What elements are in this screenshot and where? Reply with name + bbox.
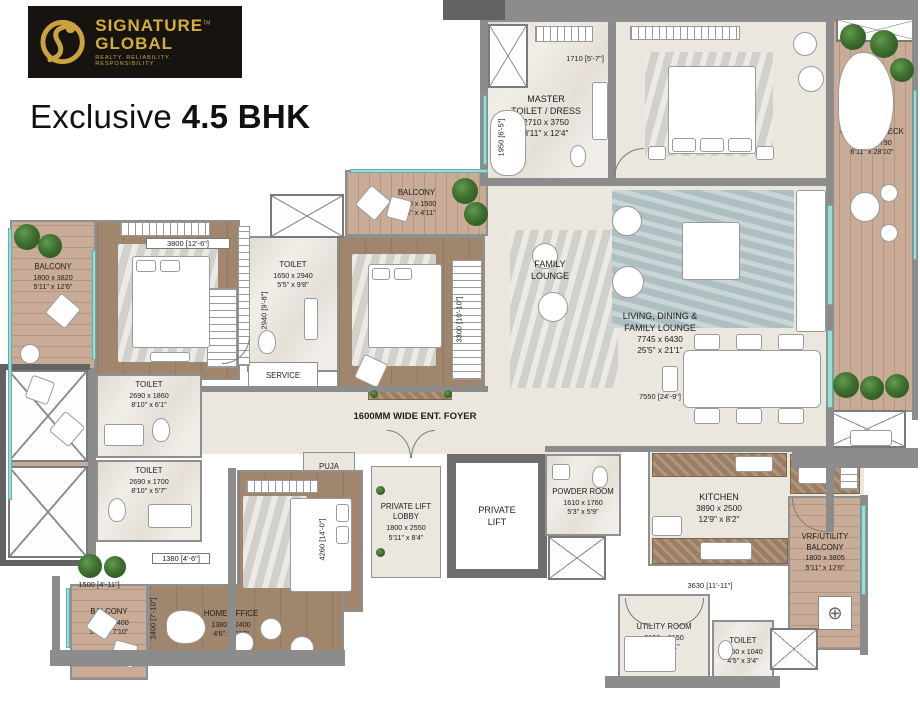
window (8, 228, 12, 500)
room-metric: 1800 x 3805 (805, 553, 845, 563)
room-metric: 2690 x 1700 (129, 477, 169, 487)
wall-kitchen-top (545, 446, 830, 452)
chair (880, 184, 898, 202)
wc (718, 640, 733, 660)
wardrobe (120, 222, 210, 236)
wc (108, 498, 126, 522)
side-table (20, 344, 40, 364)
dimension-label: 3300 [10'-10"] (455, 290, 464, 350)
brand-logo: SIGNATURETM GLOBAL REALTY. RELIABILITY. … (28, 6, 242, 78)
window (66, 588, 70, 648)
dimension-label: 1710 [5'-7"] (550, 54, 620, 63)
utility-counter (624, 636, 676, 672)
wall-bottom-right (605, 676, 780, 688)
sink (552, 464, 570, 480)
brand-tm: TM (203, 20, 210, 26)
dimension-label: 2940 [9'-8"] (260, 281, 269, 341)
brand-tagline: REALTY. RELIABILITY. RESPONSIBILITY. (95, 56, 232, 68)
dining-chair (778, 334, 804, 350)
room-label: SERVICE (266, 371, 300, 382)
room-label: BALCONY (398, 188, 435, 199)
lounge-sofa (838, 52, 894, 150)
wardrobe (630, 26, 740, 40)
pillow (394, 268, 412, 280)
plant (833, 372, 859, 398)
room-metric: 1610 x 1760 (563, 498, 603, 508)
room-label: MASTER TOILET / DRESS (511, 93, 581, 117)
room-metric: 7745 x 6430 (637, 334, 683, 345)
nightstand (756, 146, 774, 160)
room-private-lift: PRIVATE LIFT (447, 454, 547, 578)
room-label: BALCONY (34, 262, 71, 273)
pillow (728, 138, 752, 152)
nightstand (648, 146, 666, 160)
room-label: TOILET (135, 466, 162, 477)
room-label: FAMILY LOUNGE (531, 258, 569, 282)
chair (880, 224, 898, 242)
wall-shaft-top (0, 364, 90, 370)
dimension-label: 1380 [4'-6"] (152, 553, 210, 564)
foyer-label: 1600MM WIDE ENT. FOYER (340, 411, 490, 424)
dining-table (683, 350, 821, 408)
room-imperial: 5'5" x 9'8" (277, 280, 308, 290)
page-title: Exclusive 4.5 BHK (30, 98, 310, 136)
window (913, 90, 917, 260)
wall-bottom-left (50, 650, 345, 666)
wall-shaft-left (0, 364, 6, 566)
room-label: TOILET (279, 260, 306, 271)
desk-chair (166, 610, 206, 644)
plant (860, 376, 884, 400)
dimension-label: 2400 [7'-10"] (149, 589, 158, 649)
room-imperial: 8'10" x 6'1" (131, 400, 166, 410)
window (483, 95, 487, 165)
signature-global-emblem-icon (38, 17, 87, 67)
wall-left-block (88, 368, 96, 566)
armchair (538, 292, 568, 322)
room-metric: 3890 x 2500 (696, 503, 742, 514)
plant (370, 390, 378, 398)
wall-junior-left (228, 468, 236, 658)
room-label: KITCHEN (699, 491, 739, 503)
plant (452, 178, 478, 204)
pillow (672, 138, 696, 152)
room-imperial: 5'11" x 8'4" (389, 533, 424, 543)
wall-master-bottom (480, 178, 830, 186)
room-private-lift-lobby: PRIVATE LIFT LOBBY1800 x 25505'11" x 8'4… (371, 466, 441, 578)
dimension-label: 1500 [4'-11"] (72, 580, 126, 589)
room-metric: 1800 x 2550 (386, 523, 426, 533)
fan-unit-icon: ⊕ (818, 596, 852, 630)
room-imperial: 12'9" x 8'2" (699, 514, 740, 525)
dining-chair (778, 408, 804, 424)
room-label: PRIVATE LIFT LOBBY (381, 502, 431, 523)
plant (840, 24, 866, 50)
floor-plan-page: SIGNATURETM GLOBAL REALTY. RELIABILITY. … (0, 0, 920, 713)
window (827, 330, 833, 408)
bathtub (490, 110, 526, 176)
sofa (796, 190, 826, 332)
dimension-label: 3800 [12'-6"] (146, 238, 230, 249)
room-label: 1600MM WIDE ENT. FOYER (354, 411, 477, 424)
wall-deck-band (792, 448, 918, 468)
coffee-table (682, 222, 740, 280)
dimension-label: 7550 [24'-9"] (625, 392, 695, 401)
plant (885, 374, 909, 398)
title-regular: Exclusive (30, 98, 182, 135)
room-imperial: 5'3" x 5'9" (567, 507, 598, 517)
duct-shaft (548, 536, 606, 580)
room-label: TOILET (729, 636, 756, 647)
brand-line2: GLOBAL (95, 35, 232, 52)
pillow (336, 504, 349, 522)
round-table (850, 192, 880, 222)
room-label: PRIVATE LIFT (478, 504, 515, 528)
room-metric: 1800 x 3820 (33, 273, 73, 283)
window (92, 250, 96, 360)
vanity (304, 298, 318, 340)
wardrobe-junior (246, 480, 318, 493)
wall-master-divider (608, 22, 616, 180)
plant (38, 234, 62, 258)
pillow (160, 260, 180, 272)
pillow (136, 260, 156, 272)
room-metric: 2710 x 3750 (523, 117, 569, 128)
duct-shaft (770, 628, 818, 670)
pillow (372, 268, 390, 280)
plant (104, 556, 126, 578)
room-imperial: 25'5" x 21'1" (637, 345, 683, 356)
plant (870, 30, 898, 58)
armchair (612, 266, 644, 298)
brand-line1: SIGNATURE (95, 16, 203, 35)
hob (700, 542, 752, 560)
room-imperial: 4'5" x 3'4" (727, 656, 758, 666)
vanity (104, 424, 144, 446)
plant (376, 486, 385, 495)
wc (570, 145, 586, 167)
room-metric: 2690 x 1860 (129, 391, 169, 401)
room-imperial: 5'11" x 12'6" (806, 563, 845, 573)
dining-chair (662, 366, 678, 392)
armchair (612, 206, 642, 236)
vanity (148, 504, 192, 528)
plant (14, 224, 40, 250)
wall-balcony-bl-left (52, 576, 60, 656)
wall-top-dark (443, 0, 505, 20)
armchair (798, 66, 824, 92)
family-lounge-label: FAMILY LOUNGE (505, 258, 595, 282)
dining-chair (694, 408, 720, 424)
living-dining-label: LIVING, DINING & FAMILY LOUNGE7745 x 643… (590, 310, 730, 357)
brand-text: SIGNATURETM GLOBAL REALTY. RELIABILITY. … (95, 17, 232, 68)
fridge (652, 516, 682, 536)
room-label: POWDER ROOM (552, 487, 614, 498)
plant (78, 554, 102, 578)
vanity (592, 82, 608, 140)
window (861, 505, 866, 595)
room-metric: 1650 x 2940 (273, 271, 313, 281)
pillow (700, 138, 724, 152)
pillow (336, 526, 349, 544)
title-bold: 4.5 BHK (182, 98, 311, 135)
duct-shaft (488, 24, 528, 88)
dimension-label: 4260 [14'-0"] (318, 510, 327, 570)
dimension-label: 1950 [6'-5"] (497, 108, 506, 168)
wall-top (443, 0, 918, 20)
duct-shaft (270, 194, 344, 238)
wc (592, 466, 608, 488)
service-lift-shaft (8, 466, 88, 558)
double-sink (735, 456, 773, 472)
room-label: VRF/UTILITY BALCONY (802, 532, 849, 553)
room-label: TOILET (135, 380, 162, 391)
room-imperial: 5'11" x 12'6" (34, 282, 73, 292)
dining-chair (736, 408, 762, 424)
plant (890, 58, 914, 82)
chair (260, 618, 282, 640)
plant (464, 202, 488, 226)
room-label: LIVING, DINING & FAMILY LOUNGE (623, 310, 698, 334)
plant (444, 390, 452, 398)
wall-shaft-bottom (0, 560, 90, 566)
window (350, 169, 488, 173)
plant (376, 548, 385, 557)
bench (150, 352, 190, 362)
deck-table (850, 430, 892, 446)
dimension-label: 3630 [11'-11"] (675, 581, 745, 590)
window (827, 205, 833, 305)
wc (152, 418, 170, 442)
room-imperial: 8'11" x 12'4" (524, 128, 569, 139)
dining-chair (736, 334, 762, 350)
armchair (793, 32, 817, 56)
room-imperial: 8'10" x 5'7" (131, 486, 166, 496)
wardrobe (535, 26, 593, 42)
